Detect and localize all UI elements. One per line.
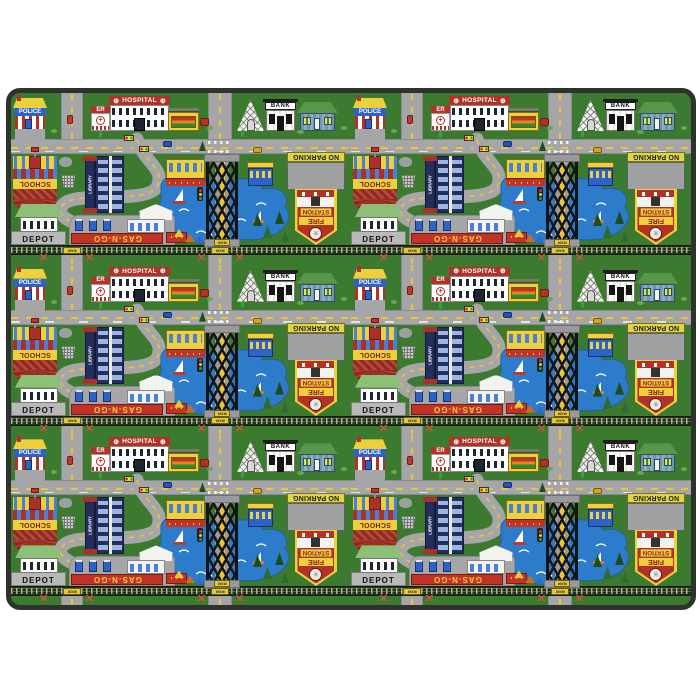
police-door xyxy=(25,460,32,470)
depot-windows xyxy=(363,392,395,400)
house-roof xyxy=(637,443,678,454)
library-roof-trim xyxy=(423,327,437,332)
railroad-ties xyxy=(11,588,351,594)
depot-windows xyxy=(23,562,55,570)
police-chimney xyxy=(17,95,21,101)
school-wings xyxy=(353,497,397,510)
library-roof-trim xyxy=(83,497,97,502)
library-roof-trim xyxy=(83,549,97,554)
grass-tuft-icon xyxy=(681,297,687,301)
depot-sign: DEPOT xyxy=(22,235,55,244)
railroad-trestle-bridge xyxy=(206,325,238,418)
er-awning xyxy=(432,126,449,130)
lake-house-windows xyxy=(590,512,611,519)
trestle-lattice xyxy=(206,495,238,588)
grass-tuft-icon xyxy=(51,129,57,133)
pattern-unit: RXR RXR RXR ✕ ✕ ✕ ✕ POLICE ER + xyxy=(11,264,351,435)
medical-cross-icon: ⊕ xyxy=(453,267,459,275)
house-window xyxy=(324,458,332,466)
school-tower xyxy=(371,488,379,498)
library-center-column xyxy=(109,497,112,554)
bank-building: BANK xyxy=(265,99,296,131)
bridge-deck-top xyxy=(204,495,240,503)
hospital-sign-text: HOSPITAL xyxy=(122,97,157,104)
pattern-unit: RXR RXR RXR ✕ ✕ ✕ ✕ POLICE ER + xyxy=(351,264,691,435)
fire-sign-line2: STATION xyxy=(641,208,672,215)
grass-tuft-icon xyxy=(681,126,687,130)
library-building: LIBRARY xyxy=(85,156,124,213)
tower-top xyxy=(31,318,39,323)
police-chimney xyxy=(17,266,21,272)
library-center-column xyxy=(109,327,112,384)
school-sign: SCHOOL xyxy=(13,179,57,189)
tower-top xyxy=(371,488,379,493)
product-photo: RXR RXR RXR ✕ ✕ ✕ ✕ POLICE ER + xyxy=(0,0,700,700)
crossbuck-icon: ✕ xyxy=(379,595,388,604)
gas-pump-icon xyxy=(75,390,83,402)
hospital-sign-text: HOSPITAL xyxy=(122,438,157,445)
bank-door xyxy=(277,287,284,302)
school-wings xyxy=(353,327,397,340)
medical-cross-icon: ⊕ xyxy=(160,97,166,105)
parking-lot xyxy=(627,333,685,361)
bridge-deck-top xyxy=(544,495,580,503)
market-roof xyxy=(508,279,539,283)
medical-cross-icon: ⊕ xyxy=(160,267,166,275)
gas-sign: GAS-N-GO xyxy=(433,234,482,243)
er-building: ER + xyxy=(431,106,450,131)
er-sign: ER xyxy=(431,277,450,284)
school-sign: SCHOOL xyxy=(353,179,397,189)
gas-sign: GAS-N-GO xyxy=(433,575,482,584)
tower-top xyxy=(31,147,39,152)
gas-pump-icon xyxy=(103,390,111,402)
fire-station-door xyxy=(652,197,661,206)
traffic-light-icon xyxy=(139,487,149,493)
library-sign: LIBRARY xyxy=(88,346,92,365)
gas-store-windows xyxy=(130,223,162,231)
crossbuck-icon: ✕ xyxy=(575,254,584,263)
person-icon xyxy=(581,471,584,478)
person-icon xyxy=(241,130,244,137)
library-building: LIBRARY xyxy=(85,497,124,554)
boathouse-windows xyxy=(169,504,202,513)
person-icon xyxy=(581,130,584,137)
crossbuck-icon: ✕ xyxy=(235,595,244,604)
boathouse-sign-band xyxy=(506,349,545,357)
boathouse-building xyxy=(166,330,205,357)
no-parking-lot: NO PARKING xyxy=(627,152,685,190)
police-sign: POLICE xyxy=(14,108,46,116)
bank-building: BANK xyxy=(605,270,636,302)
rxr-sign: RXR xyxy=(214,410,230,417)
medical-cross-icon: + xyxy=(436,116,445,125)
police-station: POLICE xyxy=(353,98,387,129)
person-icon xyxy=(99,131,102,138)
school-tower xyxy=(31,147,39,157)
library-building: LIBRARY xyxy=(425,156,464,213)
crossbuck-icon: ✕ xyxy=(85,254,94,263)
library-roof-trim xyxy=(423,208,437,213)
library-windows xyxy=(112,501,122,550)
traffic-signal-icon xyxy=(537,187,543,201)
market-store xyxy=(168,279,199,302)
traffic-light-icon xyxy=(139,146,149,152)
crossbuck-icon: ✕ xyxy=(537,595,546,604)
house-door xyxy=(654,459,660,471)
trestle-lattice xyxy=(546,325,578,418)
pattern-unit: RXR RXR RXR ✕ ✕ ✕ ✕ POLICE ER + xyxy=(351,93,691,264)
market-produce-window xyxy=(511,457,536,469)
er-sign: ER xyxy=(431,447,450,454)
lake-house-building xyxy=(247,333,274,358)
crossbuck-icon: ✕ xyxy=(197,254,206,263)
crossbuck-icon: ✕ xyxy=(39,254,48,263)
red-shop-sign xyxy=(540,459,549,467)
market-roof xyxy=(168,279,199,283)
house-window xyxy=(324,117,332,125)
fire-station-door xyxy=(652,368,661,377)
school-sign: SCHOOL xyxy=(13,520,57,530)
gas-station-store xyxy=(467,219,505,233)
traffic-light-icon xyxy=(124,135,134,141)
medical-cross-icon: ⊕ xyxy=(500,97,506,105)
library-roof-trim xyxy=(83,327,97,332)
library-roof-trim xyxy=(423,156,437,161)
hospital-entrance xyxy=(134,459,145,472)
fire-sign-line1: FIRE xyxy=(639,217,673,225)
library-windows xyxy=(112,160,122,209)
rock-icon xyxy=(399,498,412,508)
library-roof-trim xyxy=(83,379,97,384)
boathouse-building xyxy=(506,500,545,527)
police-sign: POLICE xyxy=(354,279,386,287)
grass-tuft-icon xyxy=(391,300,397,304)
person-icon xyxy=(99,472,102,479)
house-door xyxy=(314,289,320,301)
fire-sign-line1: FIRE xyxy=(639,558,673,566)
library-windows xyxy=(438,501,448,550)
house-door xyxy=(654,289,660,301)
gas-pump-icon xyxy=(415,219,423,231)
crossbuck-icon: ✕ xyxy=(425,254,434,263)
library-windows xyxy=(112,331,122,380)
railroad-trestle-bridge xyxy=(546,325,578,418)
er-awning xyxy=(92,297,109,301)
crossbuck-icon: ✕ xyxy=(235,254,244,263)
depot-station: DEPOT xyxy=(351,572,406,586)
hospital-building: ⊕ HOSPITAL ⊕ xyxy=(109,96,170,131)
railroad-track xyxy=(351,586,691,596)
crossbuck-icon: ✕ xyxy=(85,595,94,604)
gas-pump-icon xyxy=(429,390,437,402)
trestle-lattice xyxy=(206,325,238,418)
depot-roof xyxy=(355,204,403,217)
depot-roof xyxy=(355,545,403,558)
medical-cross-icon: + xyxy=(96,116,105,125)
boathouse-sign-band xyxy=(166,349,205,357)
hospital-sign: ⊕ HOSPITAL ⊕ xyxy=(449,96,510,105)
gas-pump-icon xyxy=(415,390,423,402)
bridge-deck-top xyxy=(204,154,240,162)
bank-window xyxy=(286,114,292,124)
hospital-building: ⊕ HOSPITAL ⊕ xyxy=(109,437,170,472)
trestle-lattice xyxy=(546,154,578,247)
school-sign: SCHOOL xyxy=(353,520,397,530)
house-roof xyxy=(637,102,678,113)
person-icon xyxy=(581,301,584,308)
crossbuck-icon: ✕ xyxy=(425,595,434,604)
red-shop-sign xyxy=(200,459,209,467)
grass-tuft-icon xyxy=(637,301,644,305)
rxr-sign: RXR xyxy=(63,417,81,424)
grass-tuft-icon xyxy=(297,130,304,134)
pattern-unit: RXR RXR RXR ✕ ✕ ✕ ✕ POLICE ER + xyxy=(11,93,351,264)
car-icon xyxy=(253,488,262,494)
depot-station: DEPOT xyxy=(11,231,66,245)
railroad-track xyxy=(11,586,351,596)
crossbuck-icon: ✕ xyxy=(197,425,206,434)
railroad-track xyxy=(11,416,351,426)
police-sign: POLICE xyxy=(14,449,46,457)
medical-cross-icon: + xyxy=(436,287,445,296)
bank-window xyxy=(269,285,275,295)
gas-store-windows xyxy=(130,394,162,402)
house-window xyxy=(643,117,651,125)
police-station: POLICE xyxy=(13,439,47,470)
gas-pump-icon xyxy=(75,560,83,572)
rxr-sign: RXR xyxy=(214,580,230,587)
gas-pump-icon xyxy=(429,219,437,231)
boathouse-sign-band xyxy=(166,178,205,186)
car-icon xyxy=(67,115,73,124)
railroad-trestle-bridge xyxy=(546,154,578,247)
boathouse-windows xyxy=(169,163,202,172)
car-icon xyxy=(593,488,602,494)
traffic-light-icon xyxy=(479,487,489,493)
fire-sign-line2: STATION xyxy=(641,379,672,386)
fire-station-windows xyxy=(298,191,335,198)
gas-store-windows xyxy=(470,223,502,231)
traffic-signal-icon xyxy=(197,187,203,201)
boathouse-building xyxy=(506,159,545,186)
market-store xyxy=(508,279,539,302)
hospital-windows xyxy=(452,279,507,286)
car-icon xyxy=(593,147,602,153)
gas-sign: GAS-N-GO xyxy=(93,234,142,243)
fire-station-door xyxy=(312,368,321,377)
er-building: ER + xyxy=(431,277,450,302)
car-icon xyxy=(163,141,172,147)
house-roof xyxy=(637,273,678,284)
traffic-light-icon xyxy=(139,317,149,323)
traffic-signal-icon xyxy=(537,358,543,372)
lake-house-building xyxy=(587,333,614,358)
gas-pump-icon xyxy=(443,219,451,231)
bank-window xyxy=(626,114,632,124)
parking-lot xyxy=(287,503,345,531)
house-door xyxy=(314,118,320,130)
lake-house-windows xyxy=(590,342,611,349)
railroad-track xyxy=(351,245,691,255)
er-sign: ER xyxy=(431,106,450,113)
fire-station-door xyxy=(652,538,661,547)
school-checker-band xyxy=(13,189,57,199)
gas-station-store xyxy=(127,390,165,404)
crossbuck-icon: ✕ xyxy=(39,425,48,434)
depot-station: DEPOT xyxy=(351,402,406,416)
depot-windows xyxy=(363,562,395,570)
grass-tuft-icon xyxy=(547,126,553,130)
parking-lot xyxy=(287,333,345,361)
house-roof xyxy=(297,102,338,113)
gas-sign: GAS-N-GO xyxy=(433,405,482,414)
rock-icon xyxy=(59,498,72,508)
fire-sign-line2: STATION xyxy=(301,550,332,557)
church-door xyxy=(247,460,255,472)
depot-windows xyxy=(363,221,395,229)
market-store xyxy=(168,108,199,131)
rxr-sign: RXR xyxy=(551,247,569,254)
fire-sign-line1: FIRE xyxy=(299,388,333,396)
school-entrance xyxy=(29,327,41,340)
house-building xyxy=(299,443,336,472)
medical-cross-icon: ⊕ xyxy=(453,97,459,105)
bank-window xyxy=(269,455,275,465)
fire-station-windows xyxy=(638,361,675,368)
gas-sign: GAS-N-GO xyxy=(93,405,142,414)
library-windows xyxy=(438,160,448,209)
no-parking-sign: NO PARKING xyxy=(627,323,685,333)
bank-window xyxy=(626,285,632,295)
lake-house-roof xyxy=(247,162,274,168)
red-shop-sign xyxy=(200,289,209,297)
library-roof-trim xyxy=(83,208,97,213)
market-roof xyxy=(168,108,199,112)
rxr-sign: RXR xyxy=(403,247,421,254)
play-rug: RXR RXR RXR ✕ ✕ ✕ ✕ POLICE ER + xyxy=(6,88,696,610)
hospital-windows xyxy=(112,279,167,286)
traffic-light-icon xyxy=(479,317,489,323)
bridge-deck-top xyxy=(544,154,580,162)
rock-icon xyxy=(59,328,72,338)
bank-window xyxy=(609,285,615,295)
crossbuck-icon: ✕ xyxy=(537,254,546,263)
police-sign: POLICE xyxy=(14,279,46,287)
house-building xyxy=(299,273,336,302)
grass-tuft-icon xyxy=(207,126,213,130)
medical-cross-icon: ⊕ xyxy=(500,267,506,275)
car-icon xyxy=(163,312,172,318)
fire-station-door xyxy=(312,197,321,206)
rxr-sign: RXR xyxy=(403,417,421,424)
rxr-sign: RXR xyxy=(551,588,569,595)
school-wings xyxy=(13,497,57,510)
bank-sign: BANK xyxy=(265,443,296,451)
school-windows xyxy=(353,510,397,520)
church-door xyxy=(247,290,255,302)
house-window xyxy=(664,458,672,466)
gas-pump-icon xyxy=(415,560,423,572)
no-parking-lot: NO PARKING xyxy=(287,152,345,190)
railroad-trestle-bridge xyxy=(206,495,238,588)
car-icon xyxy=(163,482,172,488)
library-roof-trim xyxy=(83,156,97,161)
gas-store-windows xyxy=(470,394,502,402)
fire-station-windows xyxy=(298,361,335,368)
hospital-sign-text: HOSPITAL xyxy=(462,438,497,445)
police-chimney xyxy=(357,436,361,442)
bank-building: BANK xyxy=(265,440,296,472)
boathouse-sign-band xyxy=(506,519,545,527)
lake-house-windows xyxy=(250,512,271,519)
rxr-sign: RXR xyxy=(551,417,569,424)
school-entrance xyxy=(369,156,381,169)
crossbuck-icon: ✕ xyxy=(379,425,388,434)
school-sign: SCHOOL xyxy=(353,350,397,360)
lake-house-building xyxy=(247,503,274,528)
library-sign-tower: LIBRARY xyxy=(85,160,95,209)
railroad-ties xyxy=(11,418,351,424)
er-building: ER + xyxy=(431,447,450,472)
police-door xyxy=(365,119,372,129)
gas-station-banner: GAS-N-GO xyxy=(411,233,503,244)
house-roof xyxy=(297,443,338,454)
grass-tuft-icon xyxy=(547,297,553,301)
school-windows xyxy=(13,510,57,520)
library-roof-trim xyxy=(423,379,437,384)
market-produce-window xyxy=(171,116,196,128)
house-window xyxy=(664,117,672,125)
gas-pump-icon xyxy=(89,390,97,402)
er-building: ER + xyxy=(91,447,110,472)
bank-door xyxy=(277,116,284,131)
rxr-sign: RXR xyxy=(554,410,570,417)
depot-windows xyxy=(23,221,55,229)
hospital-windows xyxy=(112,108,167,115)
school-entrance xyxy=(29,156,41,169)
parking-lot xyxy=(627,162,685,190)
school-tower xyxy=(31,488,39,498)
gas-station-store xyxy=(127,560,165,574)
depot-station: DEPOT xyxy=(11,572,66,586)
grass-tuft-icon xyxy=(297,301,304,305)
hospital-sign-text: HOSPITAL xyxy=(122,268,157,275)
school-wings xyxy=(353,156,397,169)
school-windows xyxy=(353,169,397,179)
railroad-trestle-bridge xyxy=(546,495,578,588)
no-parking-sign: NO PARKING xyxy=(287,323,345,333)
railroad-ties xyxy=(351,418,691,424)
crossbuck-icon: ✕ xyxy=(425,425,434,434)
school-windows xyxy=(13,169,57,179)
person-icon xyxy=(439,131,442,138)
lake-house-windows xyxy=(590,171,611,178)
gas-station-banner: GAS-N-GO xyxy=(71,404,163,415)
gas-station-banner: GAS-N-GO xyxy=(411,404,503,415)
school-tower xyxy=(31,318,39,328)
car-icon xyxy=(503,482,512,488)
library-sign: LIBRARY xyxy=(428,175,432,194)
police-station: POLICE xyxy=(13,269,47,300)
rxr-sign: RXR xyxy=(211,247,229,254)
bank-door xyxy=(617,287,624,302)
medical-cross-icon: ⊕ xyxy=(113,97,119,105)
fire-sign-line1: FIRE xyxy=(299,558,333,566)
pattern-unit: RXR RXR RXR ✕ ✕ ✕ ✕ POLICE ER + xyxy=(11,434,351,605)
library-sign-tower: LIBRARY xyxy=(85,331,95,380)
house-window xyxy=(643,458,651,466)
